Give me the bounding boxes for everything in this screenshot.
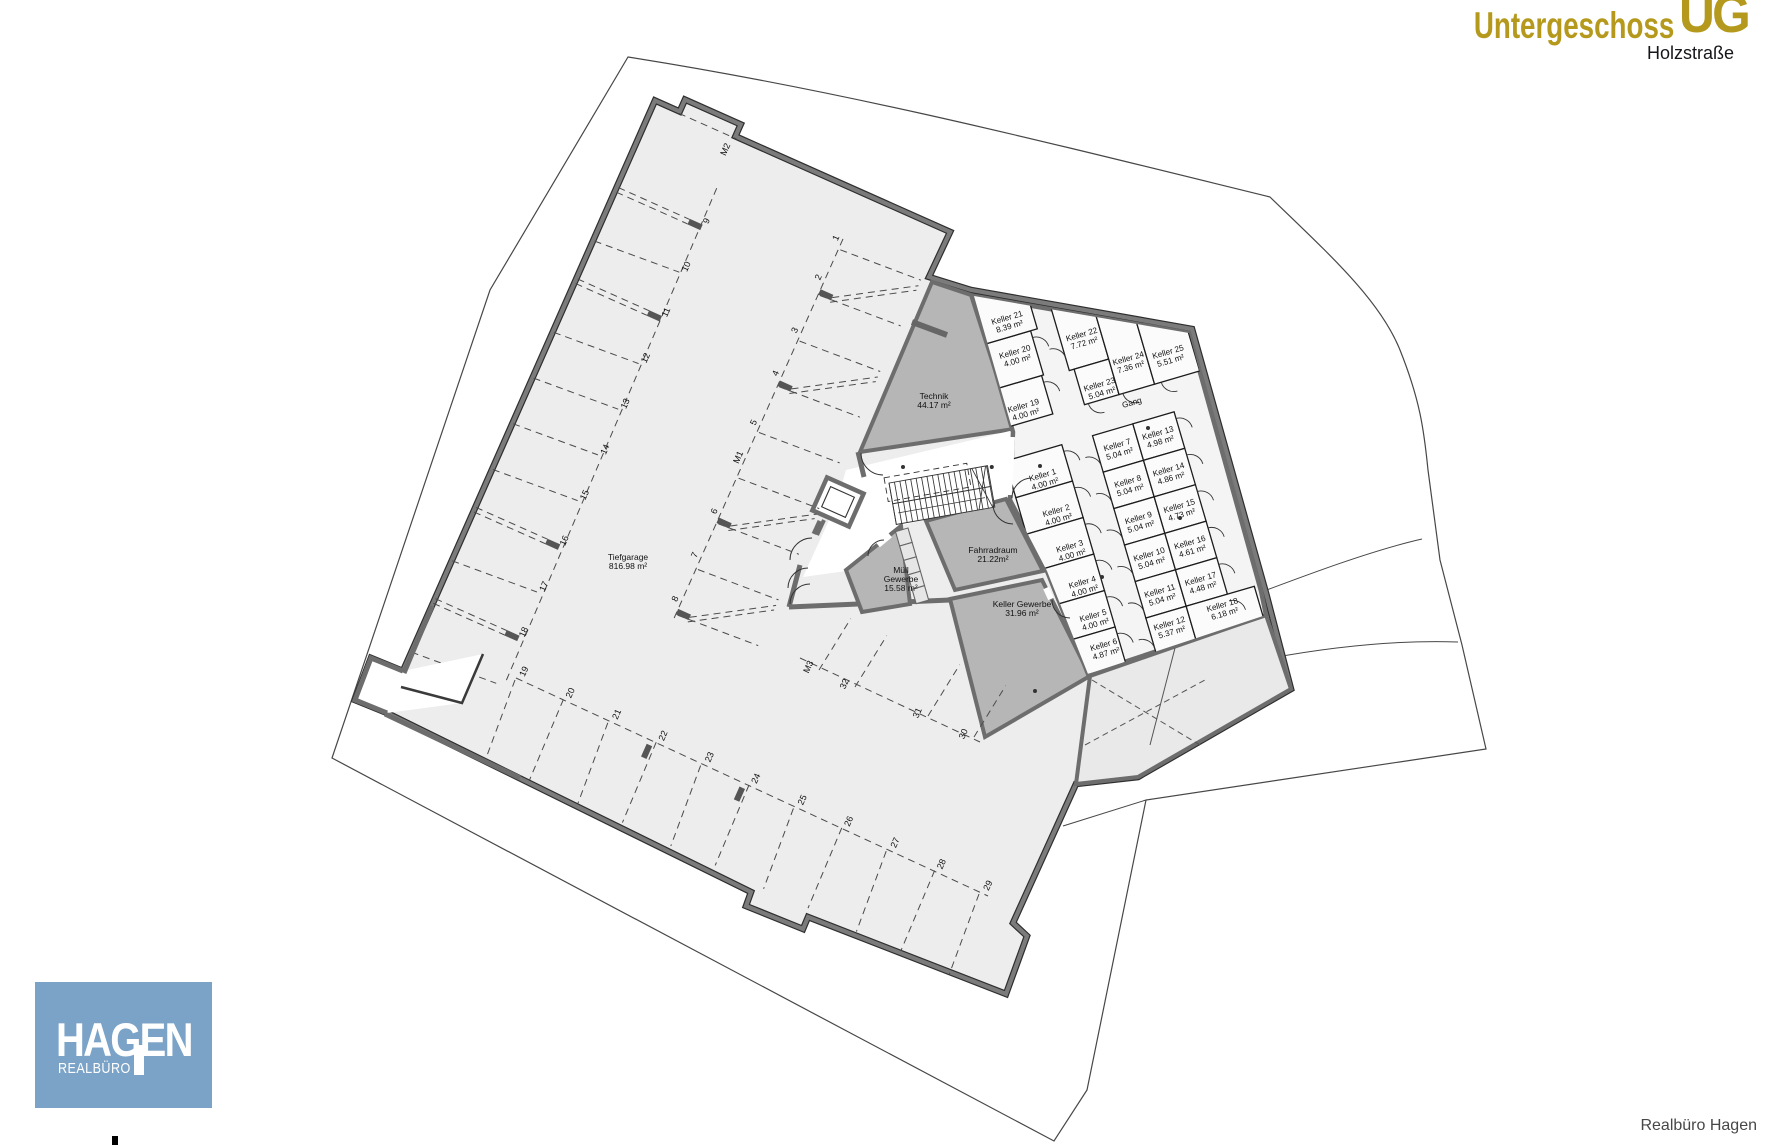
svg-text:15.58 m²: 15.58 m² — [884, 583, 918, 593]
svg-text:44.17 m²: 44.17 m² — [917, 400, 951, 410]
svg-text:21.22m²: 21.22m² — [977, 554, 1008, 564]
svg-text:816.98 m²: 816.98 m² — [609, 561, 647, 571]
svg-text:31.96 m²: 31.96 m² — [1005, 608, 1039, 618]
